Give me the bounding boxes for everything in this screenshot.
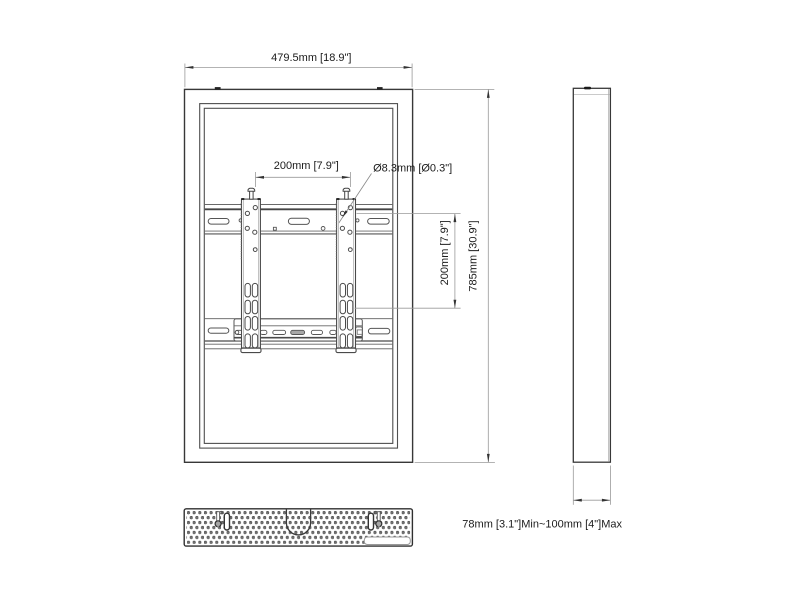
svg-text:200mm [7.9"]: 200mm [7.9"] [439,220,451,285]
svg-text:78mm [3.1"]Min~100mm [4"]Max: 78mm [3.1"]Min~100mm [4"]Max [462,519,622,531]
svg-text:785mm [30.9"]: 785mm [30.9"] [467,220,479,291]
svg-text:479.5mm [18.9"]: 479.5mm [18.9"] [271,52,351,64]
svg-text:Ø8.3mm [Ø0.3"]: Ø8.3mm [Ø0.3"] [373,163,452,175]
svg-text:200mm [7.9"]: 200mm [7.9"] [274,160,339,172]
